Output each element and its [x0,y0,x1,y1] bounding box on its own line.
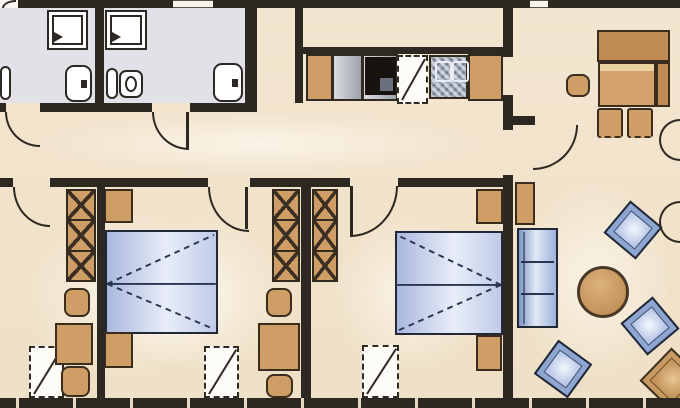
stool-3 [266,288,292,317]
roof-window-2 [204,346,239,398]
round-coffee-table [577,266,629,318]
bedroom-1-door-leaf [245,187,248,229]
double-bed-1 [105,230,218,334]
vanity-table-2 [258,323,300,371]
wardrobe-cell [314,252,336,280]
wardrobe-cell [274,191,298,221]
corridor-glow [30,112,490,176]
basin-bowl-icon [125,76,137,92]
top-window-2 [530,0,548,8]
exterior-wall-bottom [0,398,680,408]
toilet-2 [213,63,243,102]
nightstand-2 [104,332,133,368]
wardrobe-cell [68,221,94,251]
living-door-jamb-stub [513,116,535,125]
armchair-cushion [630,306,669,345]
armchair-cushion [613,210,652,249]
kitchen-living-wall-c [503,175,513,408]
kitchen-back-wall [303,47,513,54]
wardrobe-3 [312,189,338,282]
kitchen-living-wall-b [503,95,513,130]
bathroom-bottom-wall-b [40,103,152,112]
sink-basin-icon [435,61,452,82]
shower-drain-arrow-icon [54,32,68,42]
sideboard [515,182,535,225]
wardrobe-1 [66,189,96,282]
exterior-wall-top-c [548,0,680,8]
oven-glass-icon [380,78,393,91]
corridor-south-wall-a [0,178,13,187]
corridor-south-wall-b [50,178,208,187]
floor-plan [0,0,680,408]
kitchen-sink [429,55,468,99]
dining-chair-2 [627,108,653,138]
washbasin [119,70,143,98]
kitchen-cabinet-1 [306,54,333,101]
sofa-backrest-line [523,232,525,324]
bathroom-bottom-wall-c [190,103,257,112]
wardrobe-cell [68,252,94,280]
bathroom-divider-wall [95,8,104,103]
toilet-flush-icon [232,79,238,87]
corridor-south-wall-d [398,178,503,187]
shower-drain-arrow-icon [112,32,126,42]
right-edge-door-arc-1 [659,119,680,161]
sofa [517,228,558,328]
exterior-wall-top-a [18,0,173,8]
vanity-table-1 [55,323,93,365]
kitchen-appliance [332,54,363,101]
wardrobe-cell [68,191,94,221]
armchair-cushion [543,349,582,388]
wardrobe-cell [274,252,298,280]
toilet-1 [65,65,92,102]
bedroom-2-door-leaf [350,186,353,237]
exterior-wall-top-b [213,0,530,8]
shower-2 [105,10,147,50]
armchair-cushion [649,357,680,402]
toilet-flush-icon [81,80,87,88]
shower-1 [47,10,88,50]
top-window-1 [173,0,213,8]
cropped-fixture-left-edge [0,66,11,100]
stove [365,57,396,95]
kitchen-left-wall [295,8,303,103]
sofa-seat-seam [521,261,554,263]
bathroom-right-wall [245,8,257,103]
sink-basin-icon [452,61,469,82]
dining-table [598,62,656,107]
bathroom-2-door-leaf [186,112,189,150]
stool-1 [64,288,90,317]
wardrobe-2 [272,189,300,282]
dining-bench-top [597,30,670,62]
dressing-room-door-arc [13,187,50,227]
bathroom-1-door-arc [5,112,40,147]
stool-2 [61,366,90,397]
wardrobe-cell [314,191,336,221]
dining-bench-right [656,62,670,107]
bed-head-partition-wall [97,178,105,408]
living-room-door-arc [533,125,578,170]
kitchen-cabinet-2 [468,54,503,101]
nightstand-3 [476,189,503,224]
dishwasher-dashed [397,55,428,104]
double-bed-2 [395,231,503,335]
bidet [106,68,118,99]
nightstand-4 [476,335,502,371]
sofa-seat-seam [521,293,554,295]
dining-stool [566,74,590,97]
corridor-south-wall-c [250,178,350,187]
wardrobe-cell [314,221,336,251]
table-top-highlight [600,64,654,71]
dining-chair-1 [597,108,623,138]
stool-4 [266,374,293,398]
bathroom-bottom-wall-a [0,103,6,112]
nightstand-1 [104,189,133,223]
wardrobe-cell [274,221,298,251]
roof-window-3 [362,345,399,398]
bedroom-divider-wall [301,178,311,408]
kitchen-living-wall-a [503,0,513,57]
